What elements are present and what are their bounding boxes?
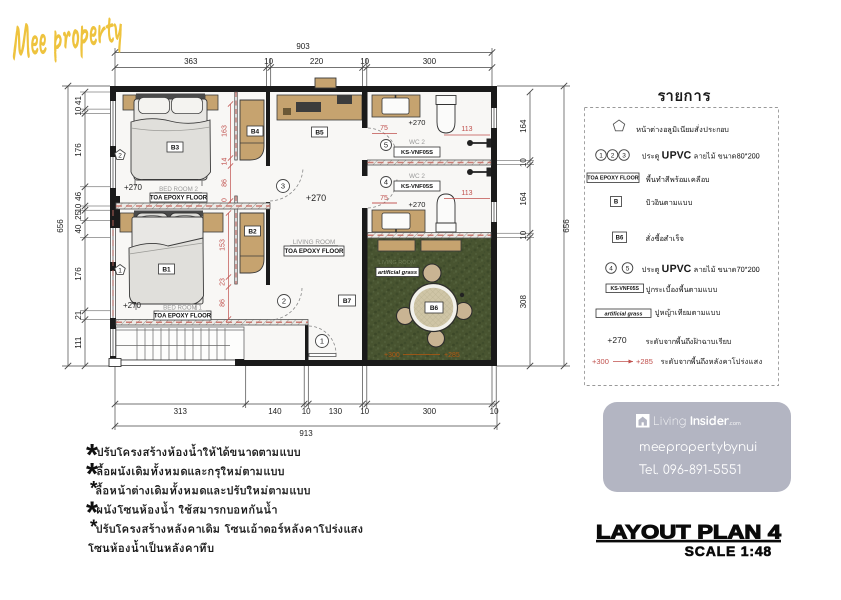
svg-text:23: 23 [220, 278, 227, 286]
svg-text:B6: B6 [616, 235, 624, 241]
svg-text:KS-VNF05S: KS-VNF05S [401, 184, 433, 190]
svg-text:WC 2: WC 2 [409, 139, 425, 146]
svg-text:+285: +285 [636, 357, 653, 366]
svg-text:153: 153 [220, 239, 227, 251]
svg-text:220: 220 [310, 57, 324, 66]
svg-text:+270: +270 [607, 335, 626, 345]
svg-text:0: 0 [222, 198, 229, 202]
svg-text:111: 111 [74, 336, 83, 349]
svg-text:113: 113 [461, 190, 472, 197]
svg-text:2: 2 [282, 297, 286, 306]
svg-text:LIVING ROOM: LIVING ROOM [293, 239, 336, 246]
svg-text:artificial grass: artificial grass [378, 270, 418, 276]
svg-text:10: 10 [519, 230, 528, 239]
svg-text:363: 363 [184, 57, 198, 66]
svg-text:+270: +270 [409, 118, 426, 127]
svg-text:4: 4 [384, 178, 388, 187]
svg-text:+270: +270 [124, 183, 143, 192]
svg-text:4: 4 [609, 265, 613, 272]
svg-text:5: 5 [626, 265, 630, 272]
svg-text:10: 10 [264, 57, 273, 66]
svg-text:10: 10 [360, 407, 369, 416]
svg-text:10: 10 [490, 407, 499, 416]
svg-text:B7: B7 [343, 298, 352, 305]
svg-text:+300: +300 [592, 357, 609, 366]
svg-text:*: * [90, 517, 98, 538]
svg-text:3: 3 [281, 182, 285, 191]
svg-text:40: 40 [74, 224, 83, 233]
svg-text:21: 21 [74, 310, 83, 319]
svg-text:+300: +300 [384, 352, 400, 359]
svg-text:B5: B5 [315, 129, 324, 136]
svg-text:313: 313 [174, 407, 188, 416]
svg-text:B3: B3 [171, 144, 180, 151]
svg-text:903: 903 [296, 42, 310, 51]
svg-text:artificial grass: artificial grass [605, 311, 643, 317]
svg-text:10: 10 [74, 106, 83, 115]
svg-text:164: 164 [519, 192, 528, 206]
svg-text:130: 130 [329, 407, 343, 416]
svg-text:LIVING ROOM: LIVING ROOM [378, 260, 416, 266]
svg-text:1: 1 [320, 337, 324, 346]
svg-text:176: 176 [74, 267, 83, 281]
svg-text:BED ROOM 2: BED ROOM 2 [159, 186, 198, 193]
svg-text:B: B [614, 200, 619, 206]
svg-text:TOA EPOXY FLOOR: TOA EPOXY FLOOR [154, 314, 212, 320]
svg-text:TOA EPOXY FLOOR: TOA EPOXY FLOOR [587, 176, 639, 182]
svg-text:14: 14 [222, 158, 229, 166]
svg-text:75: 75 [380, 195, 388, 202]
svg-text:25: 25 [74, 210, 83, 219]
svg-text:KS-VNF05S: KS-VNF05S [610, 286, 639, 292]
svg-text:TOA EPOXY FLOOR: TOA EPOXY FLOOR [284, 248, 344, 255]
svg-text:SCALE 1:48: SCALE 1:48 [685, 543, 772, 559]
svg-text:41: 41 [74, 96, 83, 105]
svg-text:B1: B1 [162, 266, 171, 273]
svg-text:176: 176 [74, 143, 83, 157]
svg-text:3: 3 [622, 152, 626, 159]
svg-text:BED ROOM 1: BED ROOM 1 [163, 305, 202, 312]
svg-text:308: 308 [519, 294, 528, 308]
svg-text:10: 10 [519, 158, 528, 167]
svg-text:656: 656 [562, 219, 571, 233]
svg-text:1: 1 [599, 152, 603, 159]
svg-text:WC 2: WC 2 [409, 173, 425, 180]
svg-text:656: 656 [56, 219, 65, 233]
svg-text:5: 5 [384, 141, 388, 150]
svg-text:46: 46 [74, 191, 83, 200]
svg-text:+270: +270 [123, 301, 142, 310]
svg-text:2: 2 [611, 152, 615, 159]
svg-text:10: 10 [360, 57, 369, 66]
svg-text:2: 2 [118, 152, 122, 159]
svg-text:+270: +270 [409, 200, 426, 209]
svg-text:300: 300 [423, 57, 437, 66]
svg-text:300: 300 [423, 407, 437, 416]
svg-text:913: 913 [299, 429, 313, 438]
svg-text:113: 113 [461, 126, 472, 133]
svg-text:B2: B2 [248, 228, 257, 235]
svg-text:+270: +270 [306, 193, 326, 203]
svg-text:B4: B4 [251, 128, 260, 135]
svg-text:10: 10 [302, 407, 311, 416]
svg-text:KS-VNF05S: KS-VNF05S [401, 150, 433, 156]
svg-text:TOA EPOXY FLOOR: TOA EPOXY FLOOR [150, 196, 208, 202]
svg-text:86: 86 [222, 179, 229, 187]
svg-text:163: 163 [222, 125, 229, 137]
svg-text:75: 75 [380, 125, 388, 132]
svg-text:+285: +285 [444, 352, 460, 359]
svg-text:B6: B6 [430, 305, 439, 312]
svg-text:1: 1 [118, 267, 122, 274]
svg-text:140: 140 [268, 407, 282, 416]
svg-text:86: 86 [220, 299, 227, 307]
svg-text:164: 164 [519, 119, 528, 133]
